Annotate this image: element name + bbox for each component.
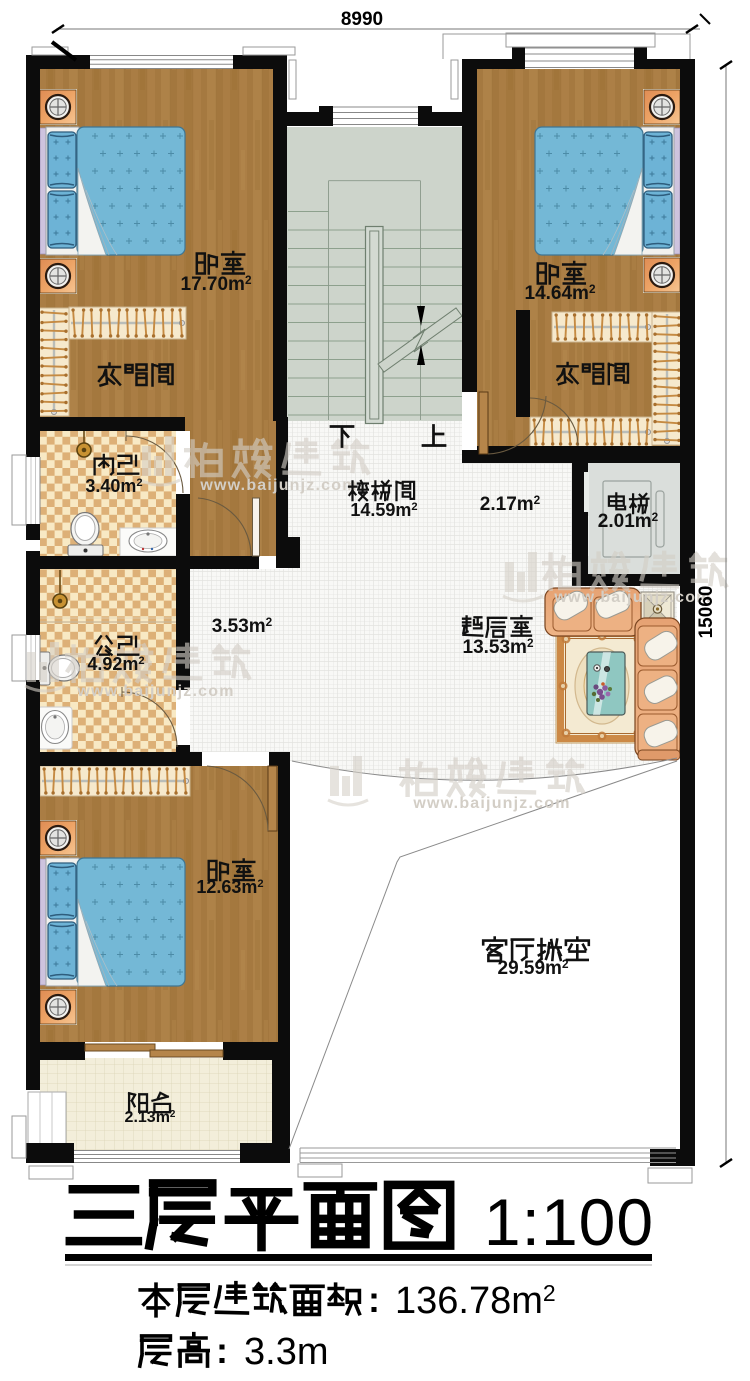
svg-text:14.64m2: 14.64m2 — [525, 283, 596, 304]
svg-text:29.59m2: 29.59m2 — [498, 958, 569, 979]
svg-text:www.baijunjz.com: www.baijunjz.com — [412, 795, 570, 812]
svg-text:3.53m2: 3.53m2 — [212, 616, 273, 637]
svg-text:2.01m2: 2.01m2 — [598, 511, 659, 532]
svg-text:136.78m2: 136.78m2 — [395, 1280, 556, 1322]
svg-text:15060: 15060 — [696, 586, 717, 639]
svg-text:www.baijunjz.com: www.baijunjz.com — [553, 589, 711, 606]
svg-text:4.92m2: 4.92m2 — [87, 654, 144, 674]
svg-text:8990: 8990 — [341, 9, 383, 30]
svg-text:www.baijunjz.com: www.baijunjz.com — [76, 683, 234, 700]
svg-text:14.59m2: 14.59m2 — [350, 500, 417, 520]
svg-text:2.17m2: 2.17m2 — [480, 494, 541, 515]
svg-text:3.3m: 3.3m — [244, 1331, 328, 1373]
svg-text:12.63m2: 12.63m2 — [196, 877, 263, 897]
svg-text:2.13m2: 2.13m2 — [125, 1109, 176, 1126]
svg-text:3.40m2: 3.40m2 — [85, 476, 142, 496]
svg-text:17.70m2: 17.70m2 — [181, 274, 252, 295]
svg-text::: : — [216, 1330, 228, 1371]
svg-text:www.baijunjz.com: www.baijunjz.com — [199, 477, 357, 494]
svg-text::: : — [368, 1279, 380, 1320]
svg-text:13.53m2: 13.53m2 — [463, 637, 534, 658]
svg-text:1:100: 1:100 — [484, 1185, 654, 1259]
